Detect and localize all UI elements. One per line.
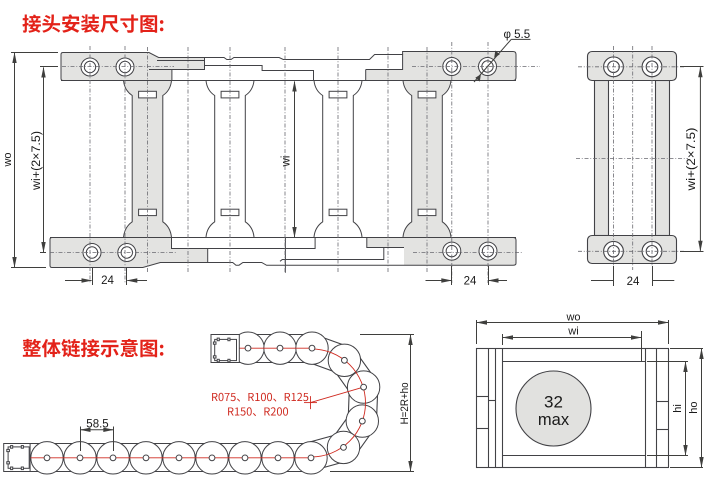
svg-text:58.5: 58.5: [86, 419, 108, 431]
svg-text:24: 24: [627, 276, 640, 288]
svg-text:wi+(2×7.5): wi+(2×7.5): [686, 127, 698, 191]
svg-text:wi+(2×7.5): wi+(2×7.5): [31, 131, 43, 191]
svg-text:H=2R+ho: H=2R+ho: [399, 382, 411, 424]
svg-text:24: 24: [101, 275, 114, 287]
svg-text:32: 32: [544, 392, 563, 411]
svg-text:24: 24: [464, 275, 477, 287]
svg-text:wo: wo: [565, 312, 580, 324]
svg-text:ho: ho: [688, 401, 700, 413]
svg-text:wo: wo: [2, 152, 14, 167]
svg-text:wi: wi: [281, 156, 293, 168]
svg-text:hi: hi: [672, 404, 684, 413]
svg-text:wi: wi: [567, 326, 578, 338]
svg-text:φ 5.5: φ 5.5: [504, 29, 531, 41]
svg-text:max: max: [538, 411, 570, 429]
